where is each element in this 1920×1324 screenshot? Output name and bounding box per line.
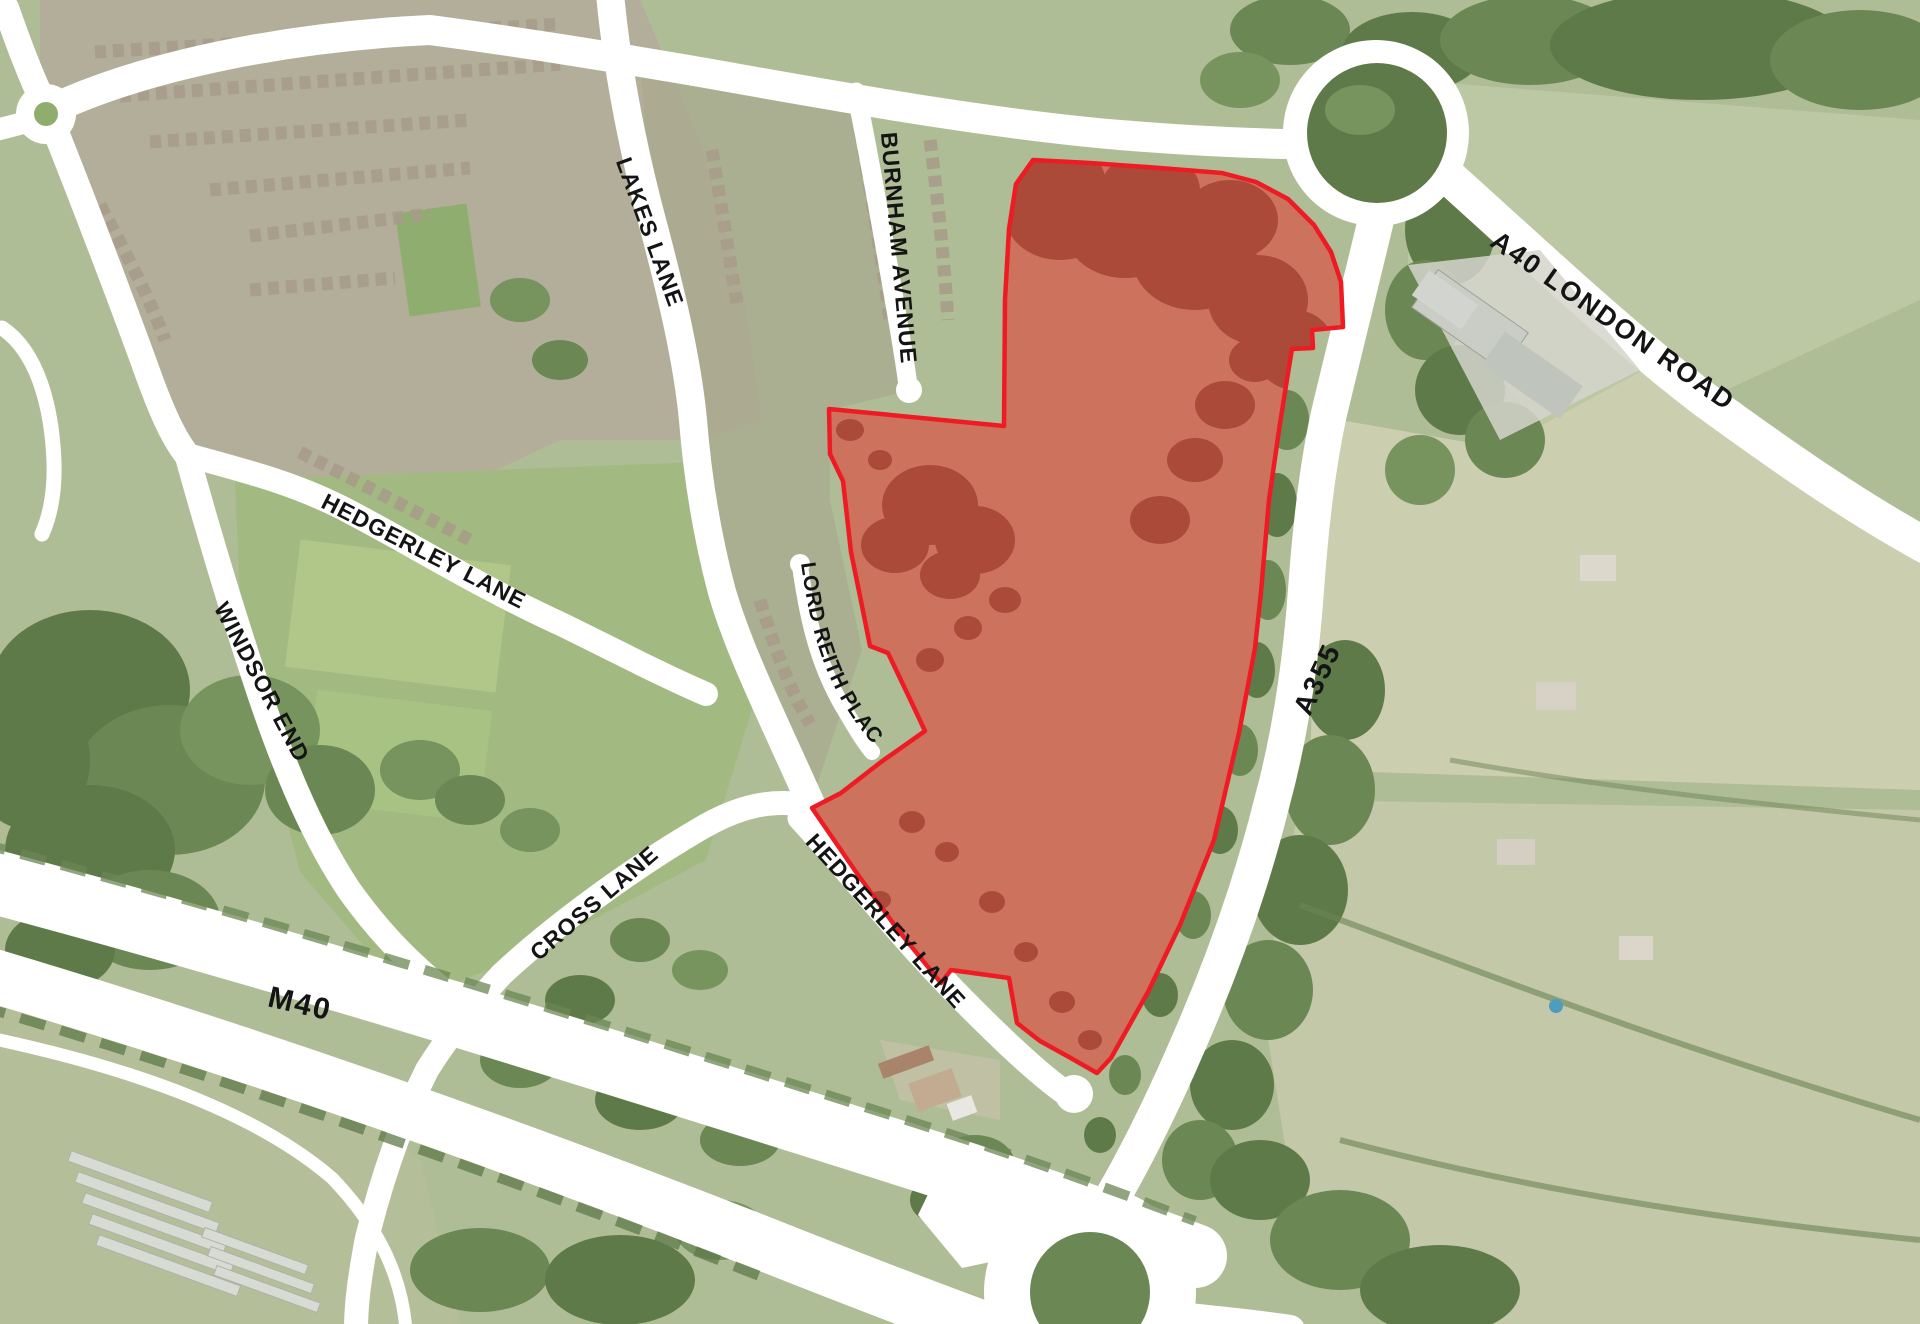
house <box>1536 682 1576 710</box>
road-rab-exit-se <box>1190 1318 1290 1324</box>
burnham-culdesac <box>896 377 922 403</box>
swimming-pool <box>1549 999 1563 1013</box>
house <box>1619 936 1653 960</box>
hedgerley-culdesac <box>1055 1075 1093 1113</box>
house <box>1497 839 1535 865</box>
aerial-map: LAKES LANEBURNHAM AVENUEA40 LONDON ROADA… <box>0 0 1920 1324</box>
house <box>1580 555 1616 581</box>
